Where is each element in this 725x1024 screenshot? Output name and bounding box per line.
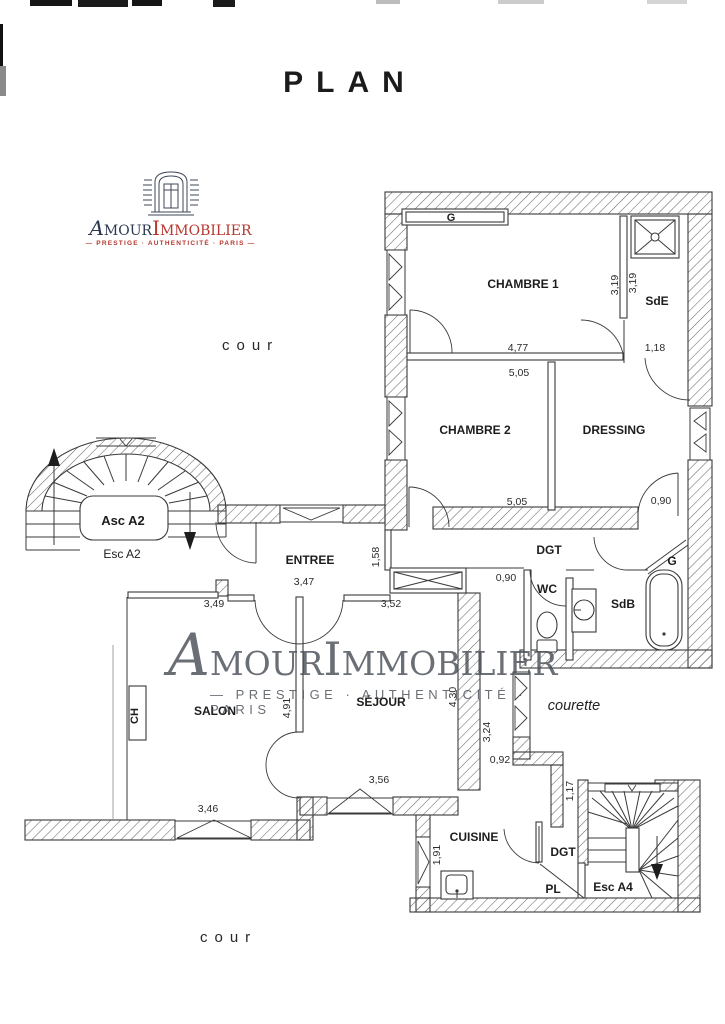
toilet-symbol [537, 612, 557, 652]
dim-salon-height: 4,91 [281, 698, 293, 719]
room-label-sde: SdE [645, 294, 668, 308]
room-label-dgt-lower: DGT [550, 845, 576, 859]
outdoor-label-courette: courette [548, 698, 600, 714]
dim-entree-right: 1,58 [370, 547, 382, 568]
stair-label-esc-a4: Esc A4 [593, 880, 633, 894]
closet-crossed-symbol [390, 568, 466, 593]
room-label-chambre2: CHAMBRE 2 [439, 423, 511, 437]
room-label-sejour: SÉJOUR [356, 694, 406, 709]
dim-passage-height: 3,24 [481, 722, 493, 743]
dim-dressing-door: 0,90 [651, 495, 672, 507]
room-label-salon: SALON [194, 704, 236, 718]
dim-sejour-height: 4,30 [447, 687, 459, 708]
dim-wc-passage: 0,90 [496, 572, 517, 584]
dim-stair-passage: 1,17 [564, 781, 576, 802]
dim-cuisine-window: 1,91 [431, 845, 443, 866]
stair-label-esc-a2: Esc A2 [103, 547, 141, 561]
staircase-a2-group [26, 438, 226, 550]
dim-ch1-width: 4,77 [508, 342, 529, 354]
dim-entree-bottom: 3,52 [381, 598, 402, 610]
closet-label-top: G [447, 212, 456, 224]
closet-label-sdb: G [667, 554, 676, 568]
fireplace-label: CH [129, 708, 141, 724]
room-label-cuisine: CUISINE [450, 830, 499, 844]
dim-sde-right: 3,19 [627, 273, 639, 294]
dim-ch2-top: 5,05 [509, 367, 530, 379]
floor-plan-svg: CHAMBRE 1 CHAMBRE 2 DRESSING SdE SdB WC … [0, 0, 725, 1024]
dim-sde-width: 1,18 [645, 342, 666, 354]
room-label-pl: PL [545, 882, 560, 896]
shower-symbol [631, 216, 679, 258]
washbasin-symbol [572, 589, 596, 632]
room-label-chambre1: CHAMBRE 1 [487, 277, 559, 291]
bathtub-symbol [646, 570, 682, 650]
room-label-wc: WC [537, 582, 557, 596]
room-label-entree: ENTREE [286, 553, 335, 567]
plan-page: PLAN AMOURIMMOBILIER — PRESTIGE [0, 0, 725, 1024]
room-label-dressing: DRESSING [583, 423, 646, 437]
dim-salon-top: 3,49 [204, 598, 225, 610]
dim-ch2-bottom: 5,05 [507, 496, 528, 508]
dim-entree-width: 3,47 [294, 576, 315, 588]
dim-salon-window: 3,46 [198, 803, 219, 815]
lift-label-asc-a2: Asc A2 [101, 513, 145, 528]
dim-sejour-window: 3,56 [369, 774, 390, 786]
dim-sde-left: 3,19 [609, 275, 621, 296]
dim-passage-width: 0,92 [490, 754, 511, 766]
kitchen-sink-symbol [441, 871, 473, 899]
room-label-sdb: SdB [611, 597, 635, 611]
room-label-dgt-upper: DGT [536, 543, 562, 557]
